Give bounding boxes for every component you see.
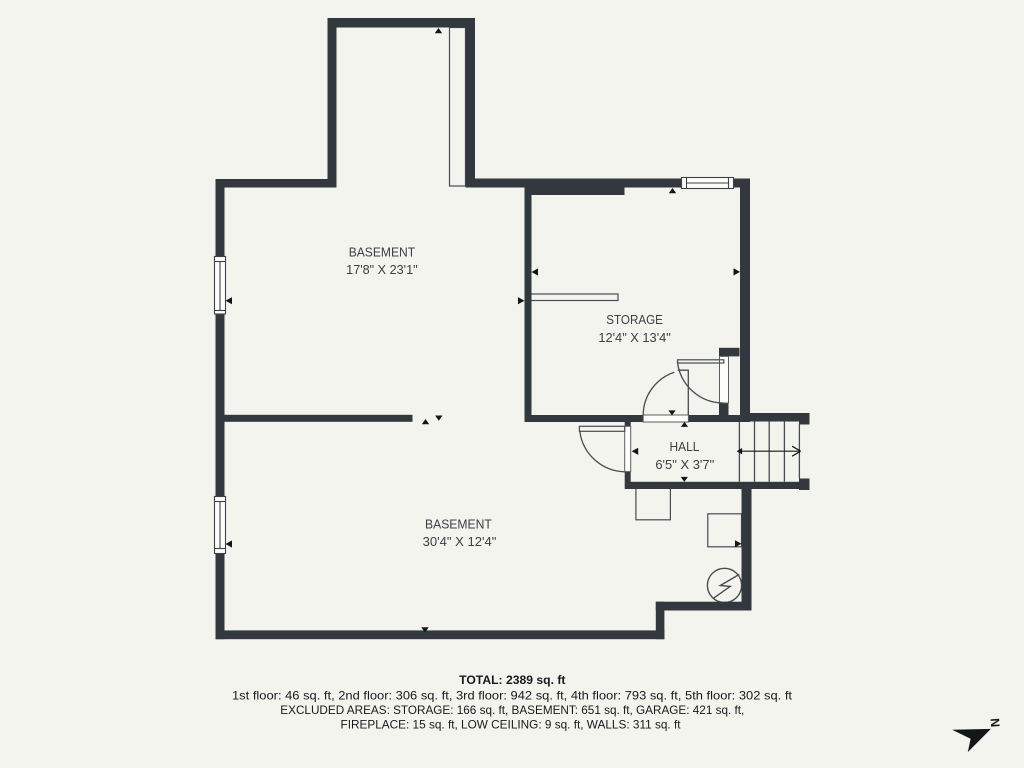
svg-text:BASEMENT: BASEMENT bbox=[425, 517, 492, 531]
svg-text:30'4" X 12'4": 30'4" X 12'4" bbox=[423, 535, 497, 549]
svg-text:EXCLUDED AREAS: STORAGE: 166 s: EXCLUDED AREAS: STORAGE: 166 sq. ft, BAS… bbox=[280, 703, 744, 717]
svg-text:HALL: HALL bbox=[670, 440, 700, 454]
svg-text:BASEMENT: BASEMENT bbox=[349, 246, 416, 260]
svg-text:1st floor: 46 sq. ft, 2nd floo: 1st floor: 46 sq. ft, 2nd floor: 306 sq.… bbox=[232, 689, 793, 703]
svg-text:N: N bbox=[988, 718, 1003, 728]
svg-text:6'5" X 3'7": 6'5" X 3'7" bbox=[655, 458, 714, 472]
svg-text:FIREPLACE: 15 sq. ft, LOW CEIL: FIREPLACE: 15 sq. ft, LOW CEILING: 9 sq.… bbox=[341, 718, 682, 732]
svg-text:17'8" X 23'1": 17'8" X 23'1" bbox=[346, 263, 417, 277]
svg-text:STORAGE: STORAGE bbox=[606, 313, 663, 327]
svg-text:TOTAL: 2389 sq. ft: TOTAL: 2389 sq. ft bbox=[459, 673, 565, 687]
svg-text:12'4" X 13'4": 12'4" X 13'4" bbox=[598, 331, 671, 345]
